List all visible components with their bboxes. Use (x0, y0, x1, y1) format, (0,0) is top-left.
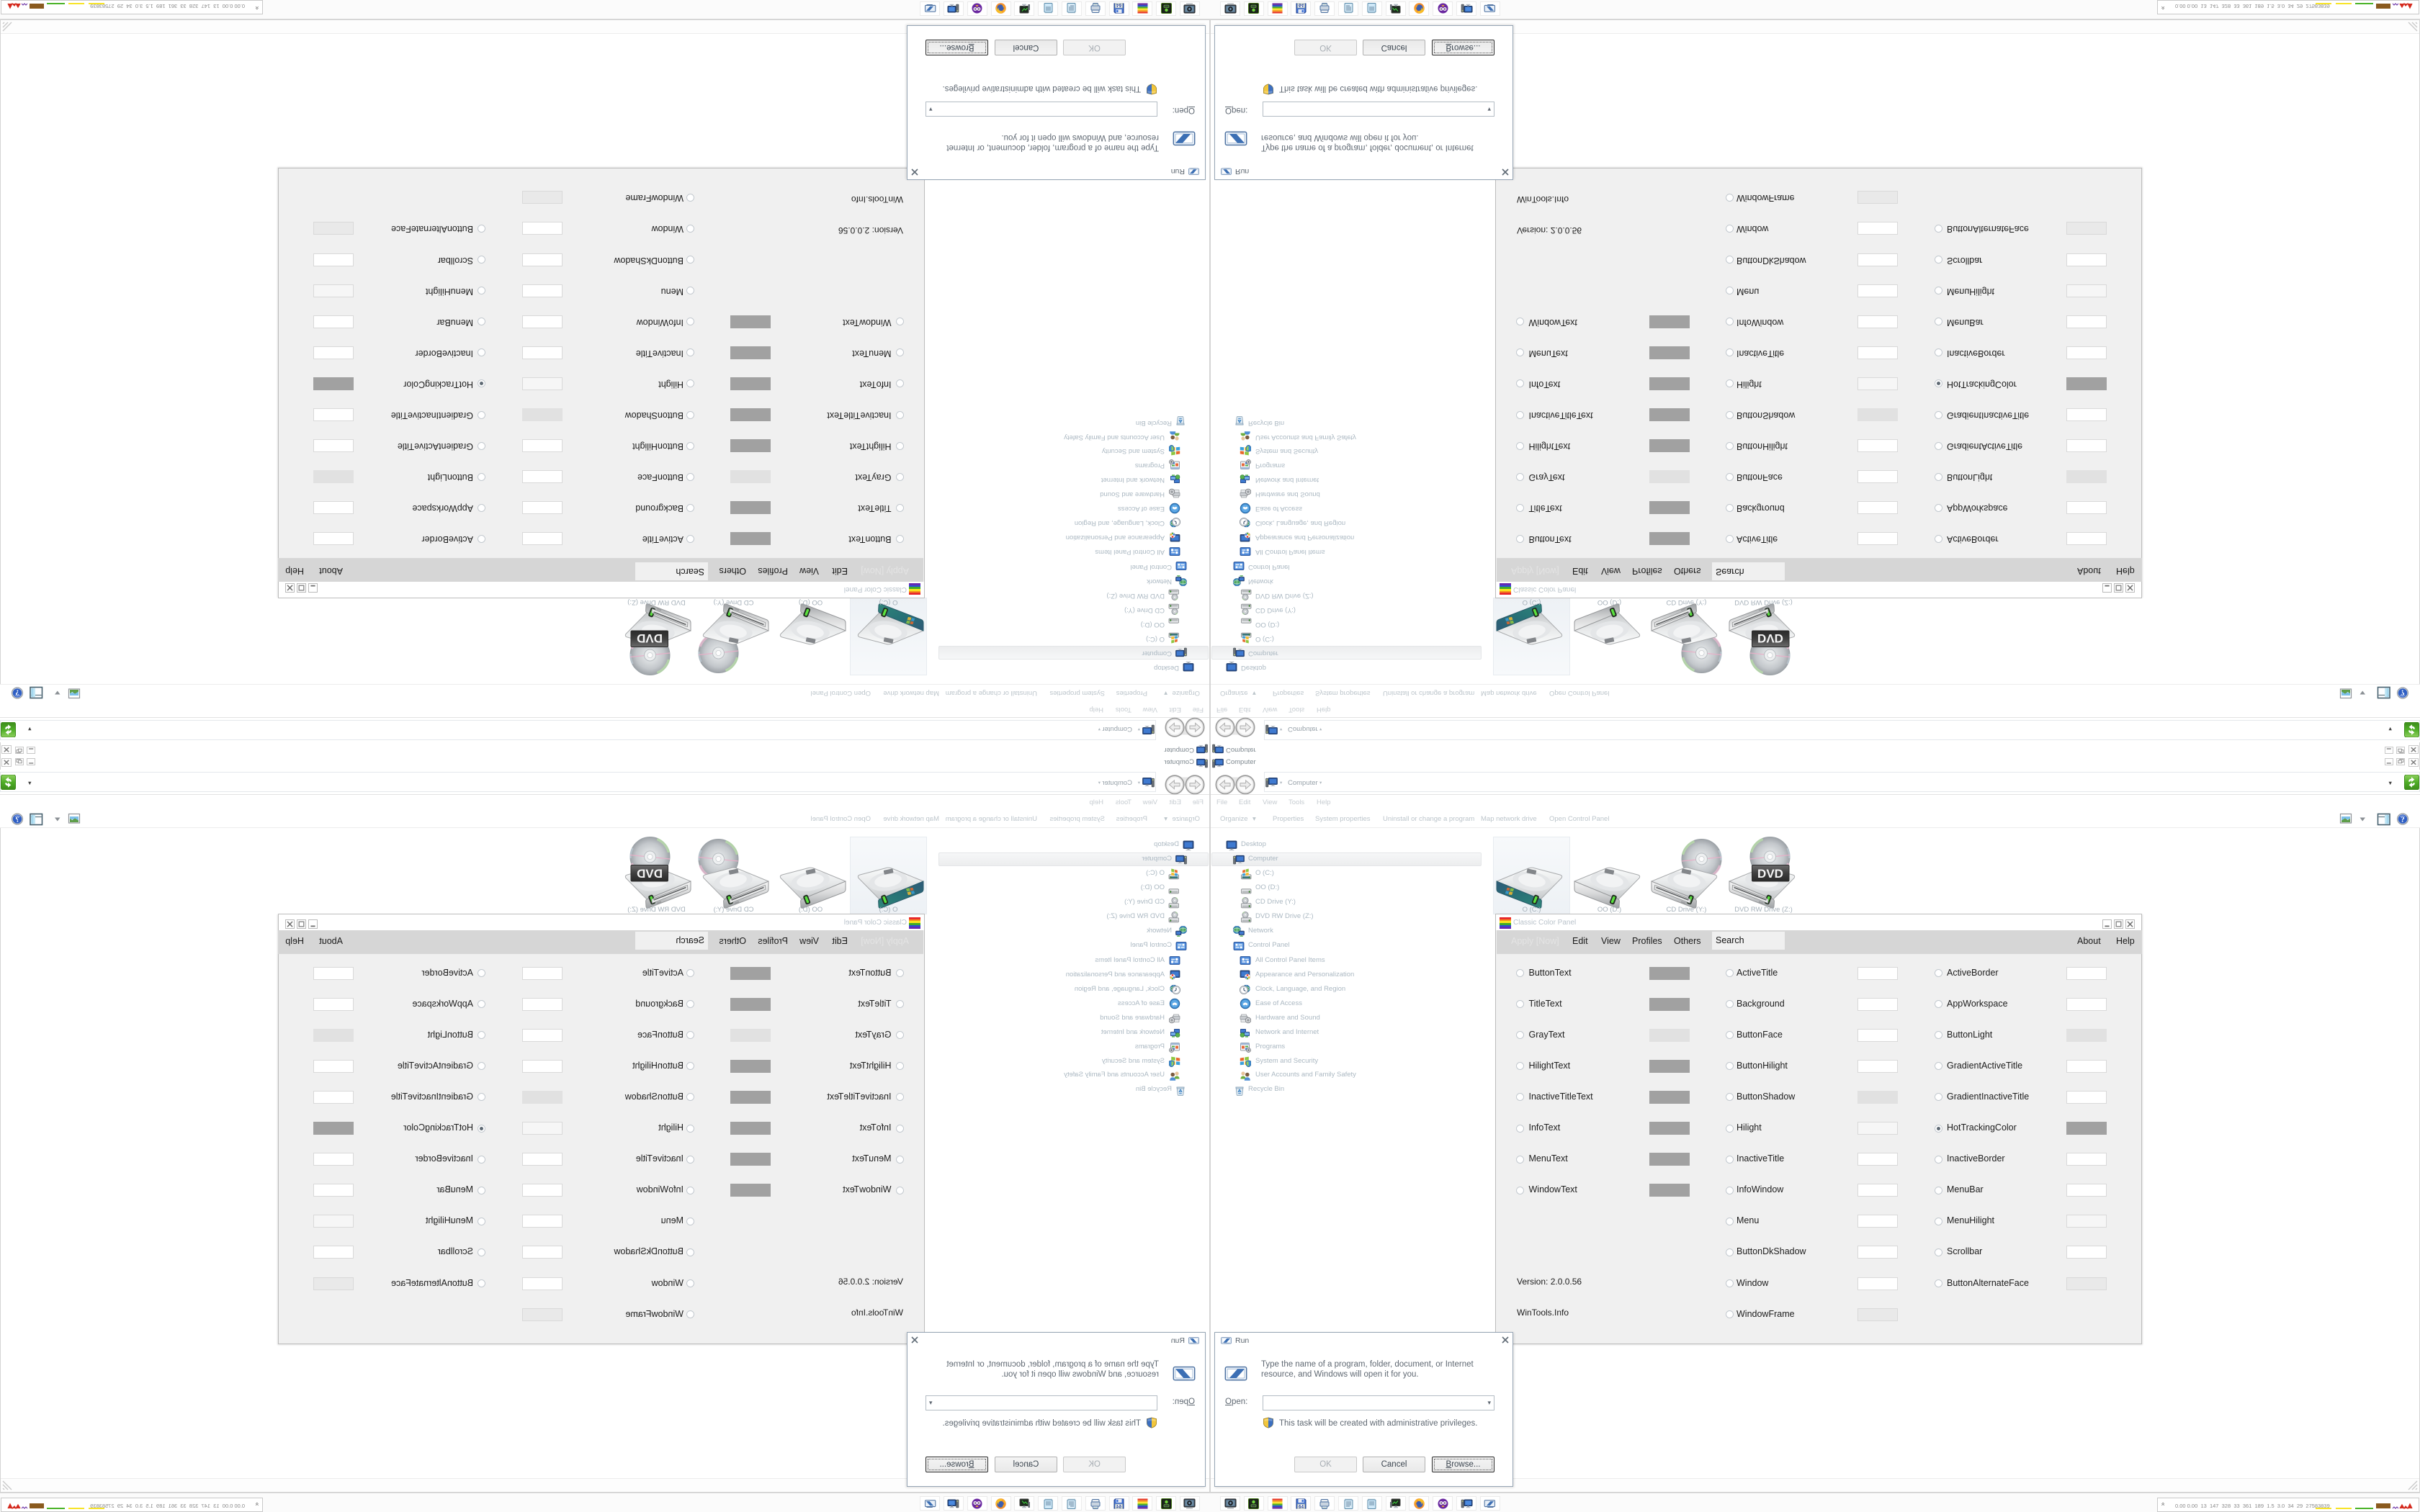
svg-text:DVD: DVD (637, 867, 663, 881)
svg-text:64: 64 (1299, 1504, 1304, 1509)
svg-text:DVD: DVD (1757, 631, 1783, 645)
svg-text:64: 64 (1116, 3, 1122, 8)
svg-text:DVD: DVD (637, 631, 663, 645)
svg-text:64: 64 (1299, 3, 1304, 8)
svg-text:?: ? (2401, 815, 2405, 824)
svg-text:?: ? (15, 815, 19, 824)
svg-text:?: ? (15, 688, 19, 697)
svg-text:DVD: DVD (1757, 867, 1783, 881)
svg-text:64: 64 (1116, 1504, 1122, 1509)
svg-text:?: ? (2401, 688, 2405, 697)
